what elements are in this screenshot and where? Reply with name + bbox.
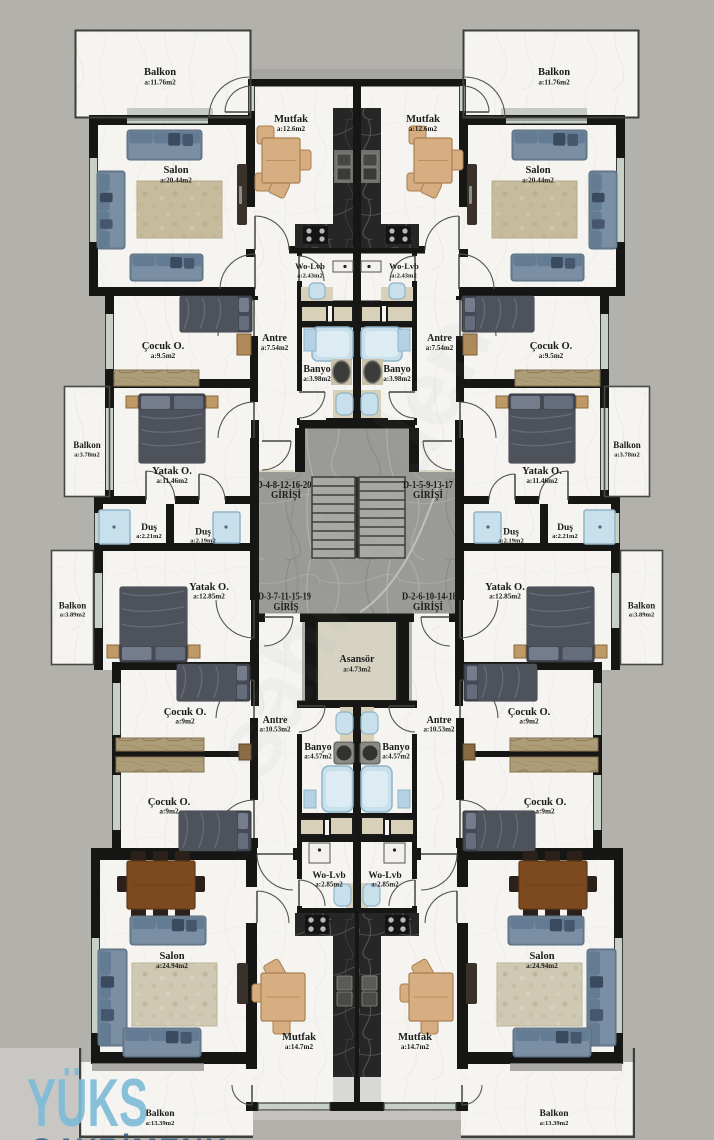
svg-text:a:12.6m2: a:12.6m2 (277, 125, 306, 133)
svg-text:Wo-Lvb: Wo-Lvb (389, 261, 419, 271)
svg-text:Salon: Salon (163, 165, 188, 176)
svg-text:a:2.19m2: a:2.19m2 (498, 538, 523, 545)
svg-text:a:9.5m2: a:9.5m2 (151, 352, 176, 360)
svg-text:a:9m2: a:9m2 (159, 808, 179, 816)
svg-text:a:2.43m2: a:2.43m2 (391, 273, 416, 280)
svg-text:a:2.21m2: a:2.21m2 (552, 533, 577, 540)
svg-text:YÜKS: YÜKS (27, 1065, 148, 1140)
svg-text:D-2-6-10-14-18: D-2-6-10-14-18 (402, 592, 457, 603)
svg-text:Antre: Antre (262, 333, 287, 344)
svg-text:a:3.98m2: a:3.98m2 (303, 375, 331, 383)
svg-text:Duş: Duş (503, 528, 519, 538)
svg-text:Salon: Salon (529, 951, 554, 962)
svg-text:a:12.85m2: a:12.85m2 (193, 593, 225, 601)
svg-text:Banyo: Banyo (303, 364, 330, 375)
svg-text:a:13.39m2: a:13.39m2 (146, 1120, 175, 1127)
svg-text:Yatak O.: Yatak O. (522, 466, 562, 477)
svg-text:Çocuk O.: Çocuk O. (530, 341, 573, 352)
svg-text:Çocuk O.: Çocuk O. (508, 707, 551, 718)
svg-text:a:3.89m2: a:3.89m2 (629, 612, 654, 619)
svg-text:Yatak O.: Yatak O. (189, 582, 229, 593)
svg-text:Banyo: Banyo (382, 742, 409, 753)
svg-text:Balkon: Balkon (145, 1109, 175, 1119)
svg-text:Wo-Lvb: Wo-Lvb (295, 261, 325, 271)
svg-text:a:2.85m2: a:2.85m2 (371, 881, 399, 889)
svg-text:a:24.94m2: a:24.94m2 (156, 962, 188, 970)
svg-text:Duş: Duş (141, 523, 157, 533)
svg-text:a:12.85m2: a:12.85m2 (489, 593, 521, 601)
svg-text:a:11.46m2: a:11.46m2 (156, 477, 188, 485)
svg-text:a:9m2: a:9m2 (535, 808, 555, 816)
svg-text:a:4.57m2: a:4.57m2 (304, 753, 332, 761)
svg-text:Salon: Salon (525, 165, 550, 176)
svg-text:Mutfak: Mutfak (274, 114, 308, 125)
svg-text:Salon: Salon (159, 951, 184, 962)
svg-text:a:4.57m2: a:4.57m2 (382, 753, 410, 761)
svg-text:Çocuk O.: Çocuk O. (148, 797, 191, 808)
svg-text:a:9m2: a:9m2 (175, 718, 195, 726)
svg-text:Mutfak: Mutfak (282, 1032, 316, 1043)
svg-text:a:13.39m2: a:13.39m2 (540, 1120, 569, 1127)
svg-text:GİRİŞİ: GİRİŞİ (271, 489, 301, 501)
svg-text:Balkon: Balkon (59, 601, 87, 611)
svg-text:Çocuk O.: Çocuk O. (524, 797, 567, 808)
svg-text:a:3.89m2: a:3.89m2 (60, 612, 85, 619)
svg-text:a:9m2: a:9m2 (519, 718, 539, 726)
svg-text:a:20.44m2: a:20.44m2 (522, 177, 554, 185)
svg-text:a:14.7m2: a:14.7m2 (401, 1043, 430, 1051)
svg-text:a:9.5m2: a:9.5m2 (539, 352, 564, 360)
svg-text:Wo-Lvb: Wo-Lvb (368, 871, 401, 881)
svg-text:Balkon: Balkon (628, 601, 656, 611)
svg-text:a:7.54m2: a:7.54m2 (261, 344, 289, 352)
svg-text:Balkon: Balkon (613, 440, 641, 450)
svg-text:a:2.85m2: a:2.85m2 (315, 881, 343, 889)
svg-text:a:2.21m2: a:2.21m2 (136, 533, 161, 540)
svg-text:Duş: Duş (557, 523, 573, 533)
svg-text:Antre: Antre (427, 715, 452, 726)
svg-text:a:12.6m2: a:12.6m2 (409, 125, 438, 133)
svg-text:a:11.46m2: a:11.46m2 (526, 477, 558, 485)
svg-text:a:3.78m2: a:3.78m2 (74, 452, 99, 459)
svg-text:a:24.94m2: a:24.94m2 (526, 962, 558, 970)
svg-text:a:10.53m2: a:10.53m2 (424, 726, 455, 734)
svg-text:a:3.78m2: a:3.78m2 (614, 452, 639, 459)
svg-text:Balkon: Balkon (144, 67, 176, 78)
svg-text:Duş: Duş (195, 528, 211, 538)
svg-text:Balkon: Balkon (73, 440, 101, 450)
svg-text:GAYRİMENK: GAYRİMENK (30, 1133, 229, 1140)
svg-text:Yatak O.: Yatak O. (485, 582, 525, 593)
svg-text:Mutfak: Mutfak (406, 114, 440, 125)
svg-text:Wo-Lvb: Wo-Lvb (312, 871, 345, 881)
svg-text:Çocuk O.: Çocuk O. (164, 707, 207, 718)
svg-text:Çocuk O.: Çocuk O. (142, 341, 185, 352)
svg-text:a:2.43m2: a:2.43m2 (297, 273, 322, 280)
svg-text:GİRİŞİ: GİRİŞİ (413, 601, 443, 613)
svg-text:a:11.76m2: a:11.76m2 (144, 79, 176, 87)
svg-text:Balkon: Balkon (538, 67, 570, 78)
svg-text:Balkon: Balkon (539, 1109, 569, 1119)
svg-text:a:2.19m2: a:2.19m2 (190, 538, 215, 545)
svg-text:Mutfak: Mutfak (398, 1032, 432, 1043)
svg-text:Yatak O.: Yatak O. (152, 466, 192, 477)
svg-text:a:11.76m2: a:11.76m2 (538, 79, 570, 87)
svg-text:a:14.7m2: a:14.7m2 (285, 1043, 314, 1051)
svg-text:a:20.44m2: a:20.44m2 (160, 177, 192, 185)
